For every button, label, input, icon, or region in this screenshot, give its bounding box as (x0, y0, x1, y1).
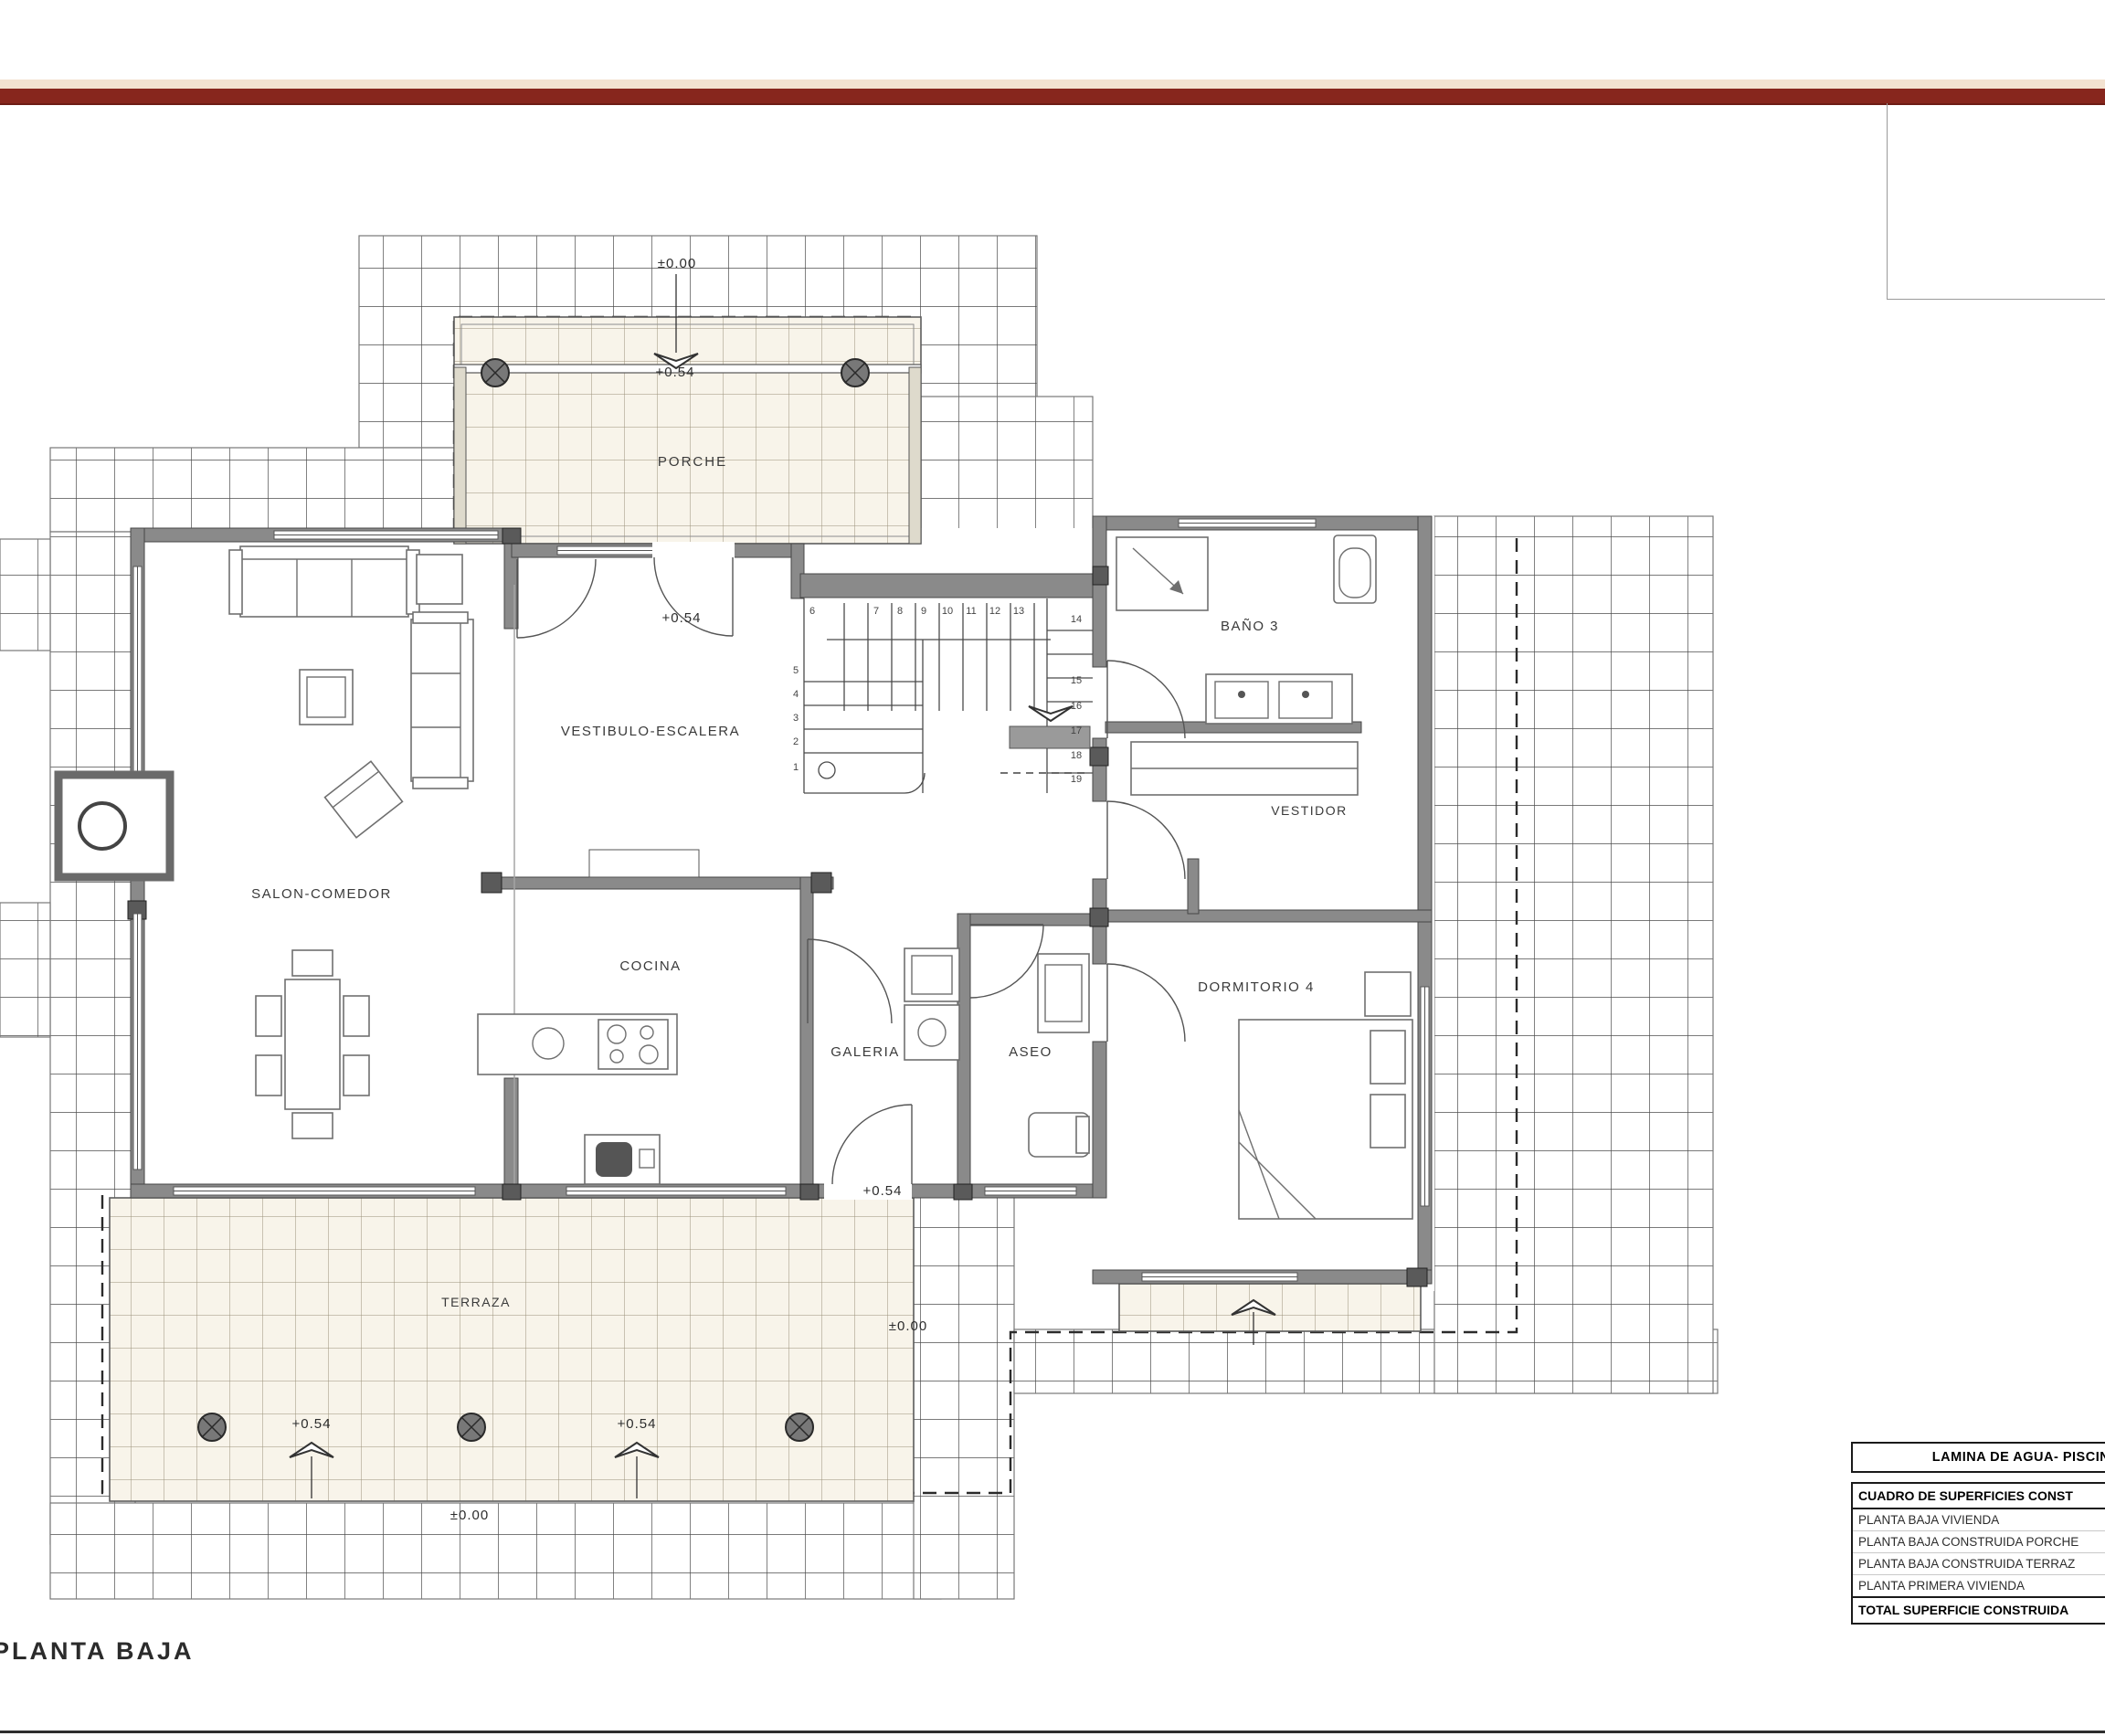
stair-number-6: 6 (809, 606, 815, 617)
stair-number-2: 2 (793, 736, 799, 747)
surfaces-panel: LAMINA DE AGUA- PISCIN CUADRO DE SUPERFI… (1851, 1442, 2105, 1634)
table-row: PLANTA BAJA CONSTRUIDA TERRAZ (1853, 1552, 2105, 1574)
coffee-table (300, 670, 353, 725)
room-label-vestidor: VESTIDOR (1271, 803, 1348, 818)
stair-number-11: 11 (966, 606, 976, 617)
stair-number-14: 14 (1071, 614, 1082, 625)
sofa (229, 546, 419, 617)
elevation-marker-5: +0.54 (292, 1416, 332, 1432)
table-row: PLANTA PRIMERA VIVIENDA (1853, 1574, 2105, 1596)
stair-number-12: 12 (989, 606, 1000, 617)
column-icon (841, 359, 869, 386)
column-icon (198, 1413, 226, 1441)
stair-number-5: 5 (793, 665, 799, 676)
stair-number-19: 19 (1071, 774, 1082, 785)
column-icon (786, 1413, 813, 1441)
built-surfaces-header: CUADRO DE SUPERFICIES CONST (1853, 1484, 2105, 1509)
stair-number-4: 4 (793, 689, 799, 700)
room-label-cocina: COCINA (619, 958, 681, 974)
bottom-border-line (0, 1731, 2105, 1733)
table-total-row: TOTAL SUPERFICIE CONSTRUIDA (1853, 1596, 2105, 1623)
room-label-vestibulo-escalera: VESTIBULO-ESCALERA (561, 724, 740, 739)
floorplan-page: { "page": { "drawing_title": "PLANTA BAJ… (0, 0, 2105, 1736)
bedroom-porch-floor (1119, 1284, 1421, 1331)
terraza-floor (110, 1198, 914, 1501)
room-label-aseo: ASEO (1009, 1044, 1052, 1060)
room-label-bano-3: BAÑO 3 (1221, 619, 1279, 634)
fireplace (58, 775, 170, 877)
stair-number-18: 18 (1071, 750, 1082, 761)
pool-water-sheet-box: LAMINA DE AGUA- PISCIN (1851, 1442, 2105, 1473)
stair-number-8: 8 (897, 606, 903, 617)
stair-number-9: 9 (921, 606, 926, 617)
stair-number-3: 3 (793, 713, 799, 724)
room-label-salon-comedor: SALON-COMEDOR (251, 886, 392, 902)
built-surfaces-table: CUADRO DE SUPERFICIES CONST PLANTA BAJA … (1851, 1482, 2105, 1625)
table-row: PLANTA BAJA VIVIENDA (1853, 1509, 2105, 1530)
stair-number-7: 7 (873, 606, 879, 617)
elevation-marker-0: ±0.00 (658, 256, 696, 271)
column-icon (458, 1413, 485, 1441)
stair-number-10: 10 (942, 606, 953, 617)
stair-number-15: 15 (1071, 675, 1082, 686)
table-row: PLANTA BAJA CONSTRUIDA PORCHE (1853, 1530, 2105, 1552)
elevation-marker-1: +0.54 (656, 365, 695, 380)
column-icon (481, 359, 509, 386)
drawing-title: PLANTA BAJA (0, 1637, 195, 1666)
sofa-2 (411, 612, 473, 789)
kitchen-island (478, 1014, 677, 1074)
porch-floor (454, 317, 921, 544)
kitchen-oven (585, 1135, 660, 1184)
elevation-marker-7: ±0.00 (450, 1508, 489, 1523)
room-label-porche: PORCHE (658, 454, 727, 470)
stair-number-1: 1 (793, 762, 799, 773)
room-label-dormitorio-4: DORMITORIO 4 (1198, 979, 1315, 995)
elevation-marker-2: +0.54 (662, 610, 702, 626)
room-label-terraza: TERRAZA (441, 1295, 511, 1309)
room-label-galeria: GALERIA (830, 1044, 900, 1060)
elevation-marker-6: +0.54 (618, 1416, 657, 1432)
stair-number-13: 13 (1013, 606, 1024, 617)
floor-plan-drawing: PORCHEVESTIBULO-ESCALERABAÑO 3VESTIDORSA… (0, 0, 2105, 1736)
stair-number-17: 17 (1071, 725, 1082, 736)
stair-number-16: 16 (1071, 701, 1082, 712)
elevation-marker-3: +0.54 (863, 1183, 903, 1199)
side-table (417, 555, 462, 604)
elevation-marker-4: ±0.00 (889, 1318, 927, 1334)
